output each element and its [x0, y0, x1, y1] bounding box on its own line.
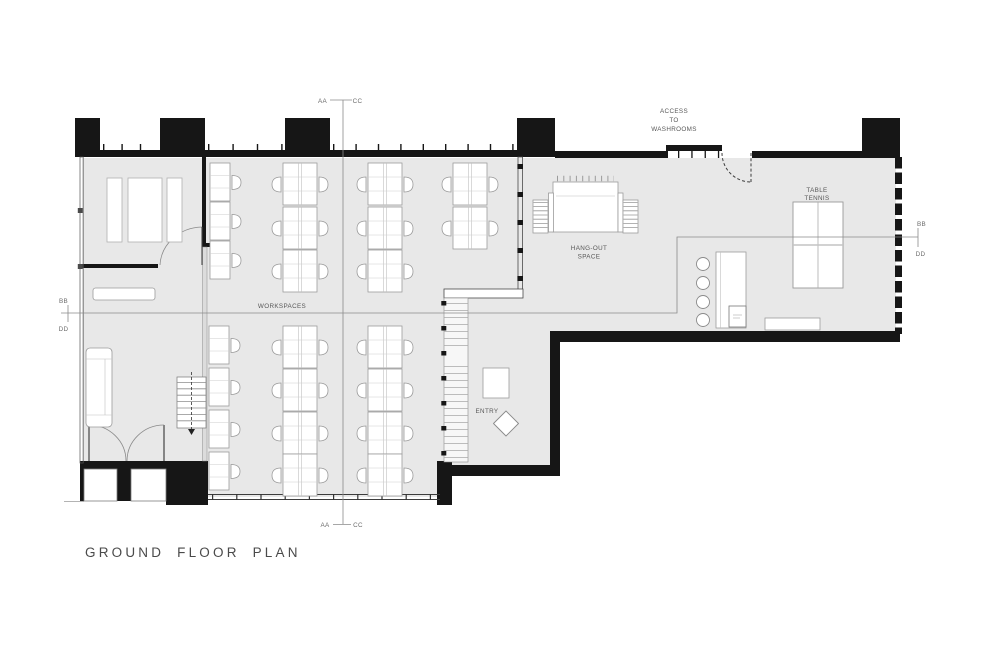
pier-entry-corner [437, 461, 452, 505]
floor-plan-page: AA CC AA CC BB DD BB DD ACCESS TO WASHRO… [0, 0, 990, 671]
pier [160, 118, 205, 157]
vestibule-block [166, 461, 208, 505]
hangout-label-1: HANG-OUT [571, 245, 607, 252]
bar-stool [697, 296, 710, 309]
floor-plan-svg: AA CC AA CC BB DD BB DD ACCESS TO WASHRO… [0, 0, 990, 671]
section-marker-cc-top: CC [353, 98, 363, 105]
wall-jog [444, 289, 523, 298]
pier [285, 118, 330, 157]
partition-lounge [203, 247, 208, 461]
lounge-credenza [93, 288, 155, 300]
wall-entry-south [437, 465, 560, 476]
workspaces-label: WORKSPACES [258, 303, 306, 310]
table-tennis-area [793, 202, 843, 288]
bar-stool [697, 314, 710, 327]
pier [517, 118, 555, 157]
washrooms-label-2: TO [669, 117, 678, 124]
wall-top-right-b [752, 151, 897, 158]
bench [765, 318, 820, 330]
washrooms-label-3: WASHROOMS [651, 126, 697, 133]
table-tennis-label-2: TENNIS [804, 195, 829, 202]
section-marker-bb-left: BB [59, 298, 68, 305]
meeting-table [167, 178, 182, 242]
vestibule-mullion [117, 469, 131, 501]
pier [75, 118, 100, 157]
sofa-wing [618, 193, 623, 232]
washrooms-label-1: ACCESS [660, 108, 688, 115]
appliance [729, 306, 746, 327]
section-marker-aa-top: AA [318, 98, 327, 105]
vestibule-door-panel [84, 469, 117, 501]
bar-stool [697, 258, 710, 271]
meeting-table [107, 178, 122, 242]
wall-entry-east [550, 331, 560, 476]
drawing-title: GROUND FLOOR PLAN [85, 545, 301, 560]
table-tennis-label-1: TABLE [806, 187, 827, 194]
wall-marker [78, 264, 83, 269]
section-marker-dd-left: DD [59, 326, 69, 333]
section-marker-cc-bottom: CC [353, 522, 363, 529]
side-table [623, 200, 638, 233]
vestibule-door-panel [131, 469, 166, 501]
hangout-label-2: SPACE [578, 254, 601, 261]
wall-meeting-south [82, 264, 158, 268]
wall-meeting-east [202, 157, 206, 243]
entry-mat [483, 368, 509, 398]
entry-label: ENTRY [476, 408, 499, 415]
meeting-room-furniture [107, 178, 182, 242]
section-marker-bb-right: BB [917, 221, 926, 228]
section-marker-aa-bottom: AA [321, 522, 330, 529]
meeting-table [128, 178, 162, 242]
side-table [533, 200, 548, 233]
section-marker-dd-right: DD [916, 251, 926, 258]
washroom-notch [666, 145, 722, 151]
wall-top-right-a [555, 151, 668, 158]
wall-bottom-right [552, 331, 900, 342]
hangout-sofa [553, 182, 618, 232]
wall-marker [78, 208, 83, 213]
sofa-wing [549, 193, 554, 232]
vestibule-jamb [80, 469, 84, 501]
bar-stool [697, 277, 710, 290]
